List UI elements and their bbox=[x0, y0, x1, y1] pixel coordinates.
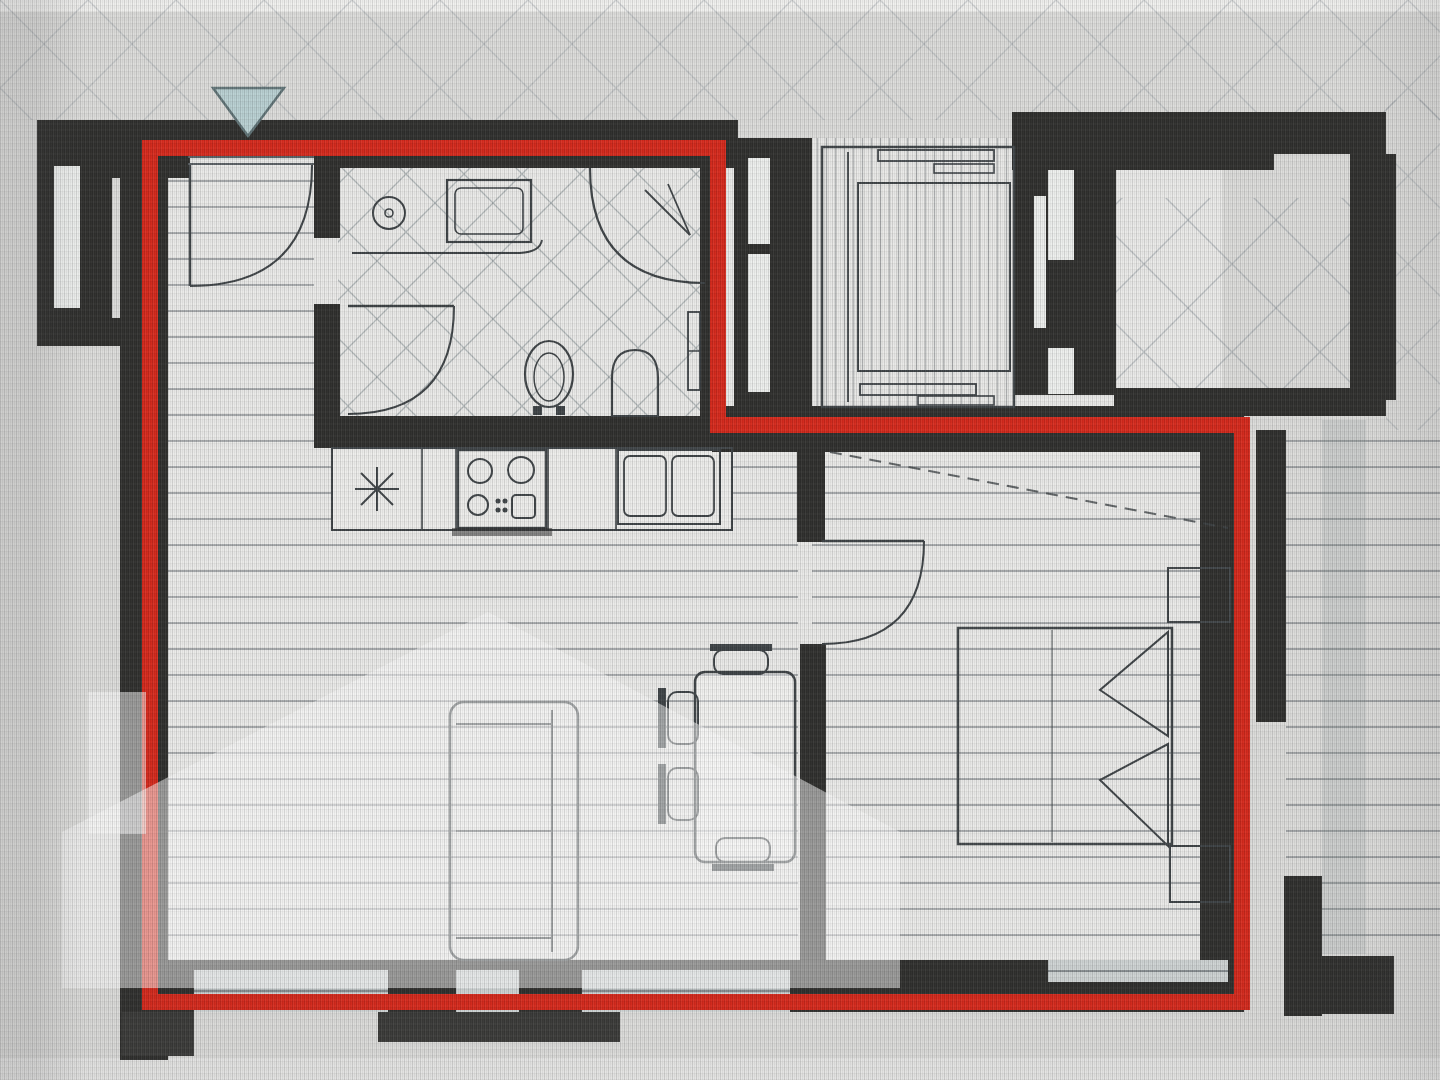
bathroom-floor-tiles bbox=[338, 168, 702, 420]
corridor-door-slot-1 bbox=[748, 158, 770, 244]
neighbor-wall-left-cap bbox=[37, 318, 122, 346]
bathroom-left-wall-upper bbox=[314, 168, 340, 238]
lobby-door-slot-2 bbox=[1048, 348, 1074, 394]
landing-top-wall bbox=[1012, 112, 1274, 170]
bathroom-left-wall-lower bbox=[314, 304, 340, 424]
lobby-door-slot-1 bbox=[1048, 166, 1074, 260]
neighbor-wall-slot bbox=[54, 166, 80, 308]
bathroom-bottom-wall bbox=[314, 416, 738, 448]
outside-right-shadow-band bbox=[1322, 420, 1366, 954]
landing-left-wall bbox=[1086, 162, 1116, 395]
landing-top-wall-extension bbox=[1274, 112, 1386, 154]
landing-floor-tiles bbox=[1116, 198, 1352, 392]
bottom-right-corner-wall-horizontal bbox=[1284, 956, 1394, 1014]
corridor-door-slot-2 bbox=[748, 254, 770, 392]
stove-front-shadow bbox=[452, 528, 552, 536]
toilet-hinge-right bbox=[556, 406, 565, 415]
common-area-tiles-top bbox=[0, 0, 1440, 120]
bottom-sill-below-red bbox=[378, 1012, 620, 1042]
corridor-wall-block bbox=[734, 138, 812, 430]
floor-plan-shapes bbox=[0, 0, 1440, 1080]
landing-right-wall bbox=[1350, 154, 1396, 400]
elevator-floor-stripes bbox=[812, 138, 1014, 430]
lobby-gap-slot bbox=[1034, 196, 1046, 328]
room-divider-wall-upper bbox=[797, 446, 825, 542]
stove-dot-3 bbox=[496, 508, 501, 513]
photographed-screen bbox=[0, 0, 1440, 1080]
stove-dot-1 bbox=[496, 499, 501, 504]
toilet-hinge-left bbox=[533, 406, 542, 415]
floor-plan bbox=[0, 0, 1440, 1080]
stove-dot-2 bbox=[503, 499, 508, 504]
photo-bottom-edge bbox=[0, 1058, 1440, 1080]
bottom-left-sill-below-red bbox=[122, 1012, 194, 1056]
bedroom-right-wall-outer bbox=[1256, 430, 1286, 722]
watermark-house-chimney bbox=[88, 692, 146, 834]
stove-dot-4 bbox=[503, 508, 508, 513]
